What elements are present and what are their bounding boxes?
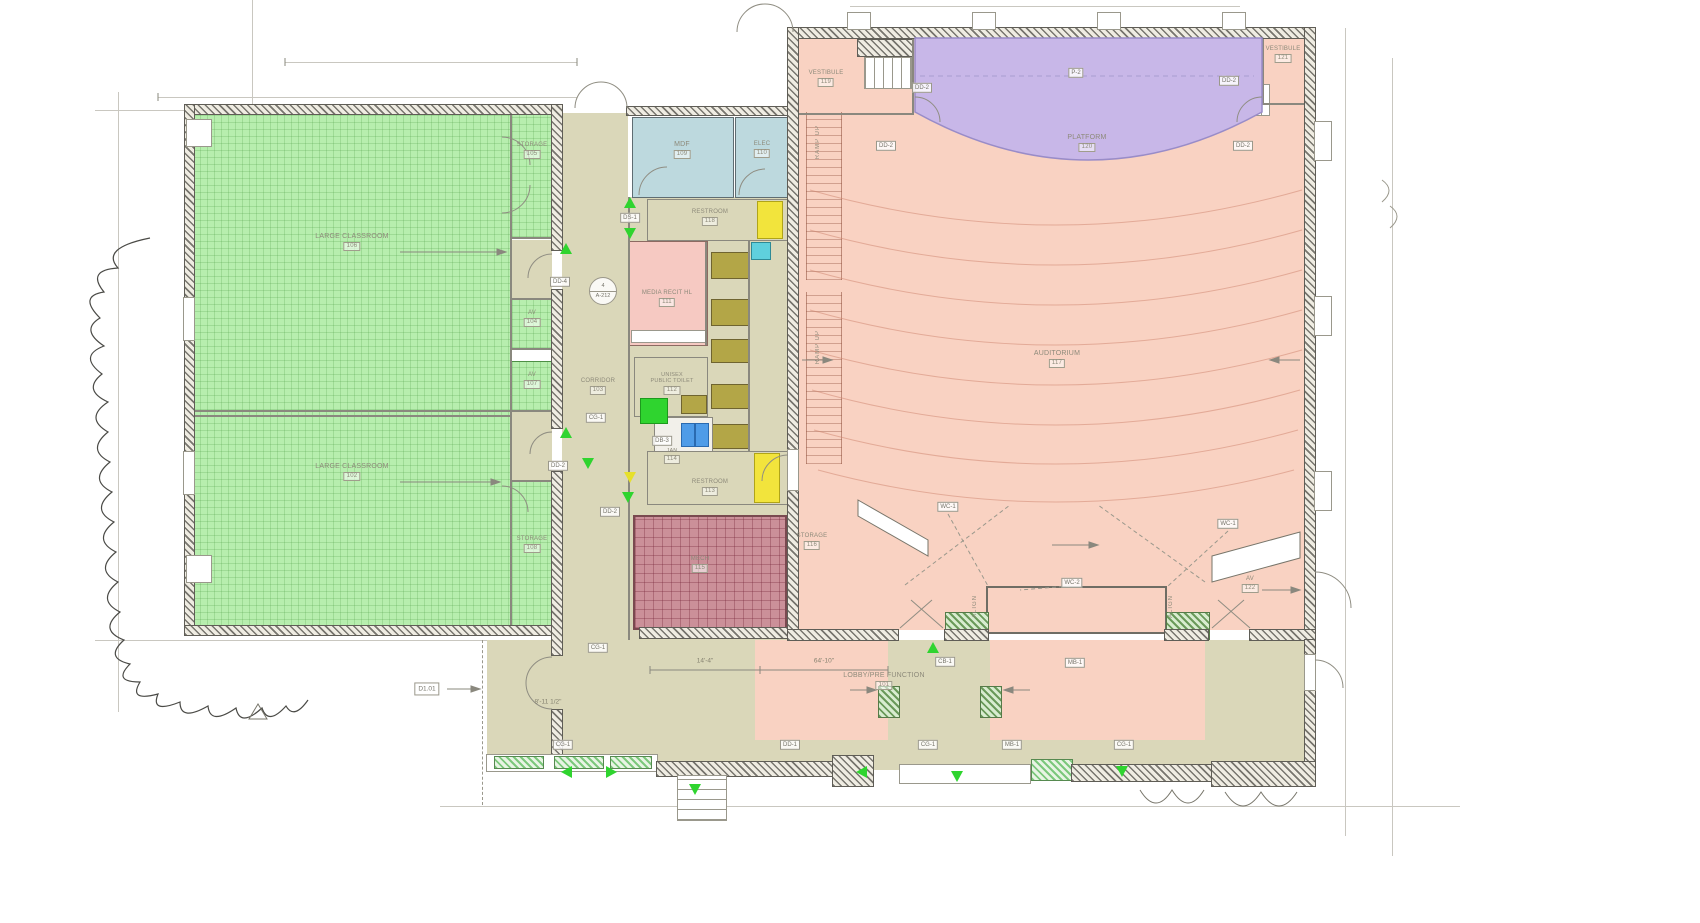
jan-fixture (682, 424, 694, 446)
room-number: 117 (1049, 359, 1065, 368)
stage-stair-right (1243, 85, 1269, 115)
south-wall (1212, 762, 1315, 786)
align-label: ALIGN (1168, 595, 1174, 618)
partition-wall (193, 415, 510, 417)
tag-wc1: WC-1 (1217, 519, 1238, 529)
landscape-arcs (1140, 790, 1297, 806)
room-name: CORRIDOR (581, 378, 615, 384)
south-wall (657, 762, 833, 776)
jan-fixture (696, 424, 708, 446)
ramp-up-label: RAMP UP (815, 125, 821, 159)
room-label-platform: PLATFORM 120 (1067, 134, 1106, 152)
corridor-wall (552, 105, 562, 250)
wing-band-wall (512, 237, 552, 239)
exterior-stair (678, 776, 726, 820)
room-large-classroom-top (193, 113, 510, 627)
media-platform-strip (632, 331, 705, 342)
room-number: 106 (344, 242, 361, 251)
lobby-carpet-left (755, 640, 888, 740)
room-label-storage-aud: STORAGE 116 (797, 533, 828, 550)
room-name: MECH (691, 556, 709, 562)
dimension-line (285, 62, 577, 63)
room-label-mdf: MDF 109 (674, 141, 691, 159)
grid-line (1392, 58, 1393, 856)
device-marker (1116, 766, 1128, 777)
corridor-wall (552, 290, 562, 428)
room-label-classroom-bottom: LARGE CLASSROOM 102 (315, 463, 388, 481)
partition-wall (193, 410, 510, 412)
room-label-classroom-top: LARGE CLASSROOM 106 (315, 233, 388, 251)
grid-line (440, 806, 1460, 807)
room-number: 111 (659, 298, 675, 307)
window-opening (184, 452, 194, 494)
corridor-floor (562, 113, 628, 640)
toilet-fixture (712, 385, 748, 408)
room-number: 108 (524, 544, 541, 553)
room-number: 118 (702, 217, 718, 226)
auditorium-south-wall (945, 630, 988, 640)
room-name: AV (1246, 576, 1254, 582)
corner-column (187, 556, 211, 582)
tag-wc1: WC-1 (937, 502, 958, 512)
sink-counter (682, 396, 706, 413)
exterior-wall (185, 105, 562, 114)
room-auditorium (798, 38, 1305, 630)
stage-stair-wall (858, 40, 912, 56)
entry-doors (900, 765, 1030, 783)
grid-break-marks (1382, 180, 1397, 228)
room-label-storage-top: STORAGE 105 (517, 142, 548, 159)
divider (590, 291, 616, 292)
tag-mb1: MB-1 (1065, 658, 1085, 668)
tag-cg1: CG-1 (918, 740, 938, 750)
tag-p2: P-2 (1068, 68, 1083, 78)
room-name: AV (528, 310, 536, 316)
tag-dd4: DD-4 (550, 277, 570, 287)
room-number: 121 (1275, 54, 1292, 63)
room-name: MEDIA RECIT HL (642, 290, 692, 296)
room-number: 102 (344, 472, 361, 481)
pilaster (973, 13, 995, 29)
wall-pilaster (1315, 122, 1331, 160)
detail-sheet: A-212 (590, 293, 616, 299)
room-name: AUDITORIUM (1034, 350, 1080, 357)
room-label-jan: JAN 114 (664, 448, 680, 464)
wing-band-wall (510, 113, 512, 627)
entry-wall-block (833, 756, 873, 786)
room-number: 105 (524, 150, 541, 159)
dimension-line (158, 97, 577, 98)
toilet-fixture (712, 253, 748, 278)
room-name: ELEC (754, 141, 770, 147)
vestibule-wall (1262, 38, 1264, 105)
tag-dd2: DD-2 (912, 83, 932, 93)
vestibule-wall (1262, 103, 1305, 105)
service-wall (748, 240, 750, 452)
tag-ds1: DS-1 (620, 213, 640, 223)
device-marker (561, 766, 572, 778)
wing-band-wall (512, 348, 552, 350)
service-wall (628, 197, 630, 640)
pier (980, 686, 1002, 718)
room-name: MDF (674, 141, 690, 148)
room-name: STORAGE (517, 536, 548, 542)
room-label-auditorium: AUDITORIUM 117 (1034, 350, 1080, 368)
vestibule-wall (798, 113, 914, 115)
room-name: VESTIBULE (1266, 46, 1301, 52)
device-marker (624, 228, 636, 239)
room-number: 103 (590, 386, 607, 395)
room-label-mech: MECH 115 (691, 556, 709, 573)
tag-dd1: DD-1 (780, 740, 800, 750)
pier (878, 686, 900, 718)
match-line (482, 640, 483, 805)
door-opening (788, 450, 798, 490)
room-name: LOBBY/PRE FUNCTION (843, 672, 924, 679)
stage-stair-left (865, 58, 911, 88)
wall-pilaster (1315, 472, 1331, 510)
room-number: 122 (1242, 584, 1259, 593)
device-marker (689, 784, 701, 795)
wing-band-wall (512, 298, 552, 300)
dimension-text: 8'-11 1/2" (535, 699, 562, 706)
sheet-reference: D1.01 (414, 682, 439, 695)
room-number: 110 (754, 149, 770, 158)
room-name: PUBLIC TOILET (650, 378, 693, 384)
pilaster (1098, 13, 1120, 29)
room-label-vestibule-right: VESTIBULE 121 (1266, 46, 1301, 63)
wing-band-wall (512, 480, 552, 482)
room-name: STORAGE (517, 142, 548, 148)
tag-cg1: CG-1 (588, 643, 608, 653)
dimension-text: 64'-10" (814, 658, 834, 665)
tag-dd2: DD-2 (876, 141, 896, 151)
grid-line (850, 6, 1240, 7)
room-name: RESTROOM (692, 209, 728, 215)
grid-line (95, 640, 487, 641)
corridor-wall (552, 472, 562, 655)
room-number: 104 (524, 318, 541, 327)
exterior-wall (185, 626, 562, 635)
room-name: VESTIBULE (809, 70, 844, 76)
auditorium-south-wall (1165, 630, 1208, 640)
storefront-sill (1032, 760, 1072, 780)
ramp-lower (806, 292, 842, 464)
room-label-restroom-top: RESTROOM 118 (692, 209, 728, 226)
room-label-av-lower: AV 107 (524, 372, 541, 389)
floor-plan: LARGE CLASSROOM 106 LARGE CLASSROOM 102 … (0, 0, 1700, 923)
tag-dd2: DD-2 (548, 461, 568, 471)
toilet-fixture (712, 340, 748, 362)
tag-cg1: CG-1 (1114, 740, 1134, 750)
room-name: STORAGE (797, 533, 828, 539)
ramp-up-label: RAMP UP (815, 330, 821, 364)
device-marker (951, 771, 963, 782)
device-marker (560, 427, 572, 438)
auditorium-south-wall (1250, 630, 1315, 640)
room-label-unisex: UNISEX PUBLIC TOILET 112 (650, 372, 693, 395)
wing-nook-lower (512, 412, 552, 480)
room-label-elec: ELEC 110 (754, 141, 770, 158)
device-marker (622, 492, 634, 503)
room-label-av-upper: AV 104 (524, 310, 541, 327)
room-label-corridor: CORRIDOR 103 (581, 378, 615, 395)
room-name: RESTROOM (692, 479, 728, 485)
service-wall (705, 242, 707, 345)
door-opening (1305, 655, 1315, 690)
pilaster (848, 13, 870, 29)
window-opening (184, 298, 194, 340)
wall-pilaster (1315, 297, 1331, 335)
room-number: 109 (674, 150, 691, 159)
detail-number: 4 (590, 283, 616, 289)
restroom-bottom-counter (755, 454, 779, 502)
room-number: 119 (818, 78, 834, 87)
device-marker (560, 243, 572, 254)
room-label-storage-bottom: STORAGE 108 (517, 536, 548, 553)
fixture-cyan (752, 243, 770, 259)
restroom-top-counter (758, 202, 782, 238)
storefront-sill (495, 757, 543, 768)
room-label-lobby: LOBBY/PRE FUNCTION 101 (843, 672, 924, 690)
device-marker (927, 642, 939, 653)
grid-line (252, 0, 253, 110)
align-label: ALIGN (972, 595, 978, 618)
tag-dd2: DD-2 (1233, 141, 1253, 151)
dimension-text: 14'-4" (697, 658, 714, 665)
detail-tag: 4 A-212 (589, 277, 617, 305)
device-marker (606, 766, 617, 778)
storefront-sill (611, 757, 651, 768)
room-number: 120 (1079, 143, 1096, 152)
equipment-marker (640, 398, 668, 424)
exterior-wall (1305, 28, 1315, 640)
tag-cg1: CG-1 (553, 740, 573, 750)
auditorium-south-wall (788, 630, 898, 640)
tag-cg1: CG-1 (586, 413, 606, 423)
room-mech (635, 517, 785, 628)
room-name: JAN (666, 448, 677, 454)
tag-db3: DB-3 (652, 436, 672, 446)
wing-band-wall (512, 410, 552, 412)
device-marker (582, 458, 594, 469)
room-name: LARGE CLASSROOM (315, 233, 388, 240)
room-number: 112 (664, 386, 680, 395)
revision-delta (249, 704, 267, 719)
exterior-wall (788, 28, 1315, 38)
room-label-restroom-bottom: RESTROOM 113 (692, 479, 728, 496)
room-number: 113 (702, 487, 718, 496)
room-name: AV (528, 372, 536, 378)
tag-cb1: CB-1 (935, 657, 955, 667)
vestibule-wall (912, 38, 914, 115)
tag-dd2: DD-2 (600, 507, 620, 517)
grid-line (118, 92, 119, 712)
tag-mb1: MB-1 (1002, 740, 1022, 750)
tag-wc2: WC-2 (1061, 578, 1082, 588)
room-number: 115 (692, 564, 708, 573)
room-storage-bottom (512, 482, 552, 627)
pilaster (1223, 13, 1245, 29)
room-number: 116 (804, 541, 820, 550)
lobby-wall (640, 628, 790, 638)
grid-line (1345, 28, 1346, 836)
room-name: UNISEX (661, 372, 683, 378)
device-marker-yellow (624, 472, 636, 483)
room-label-av-aud: AV 122 (1242, 576, 1259, 593)
grid-line (95, 110, 187, 111)
lobby-carpet-right (990, 640, 1205, 740)
toilet-fixture (712, 425, 748, 448)
room-label-vestibule-left: VESTIBULE 119 (809, 70, 844, 87)
north-wall (627, 107, 790, 115)
south-wall (1072, 765, 1212, 781)
room-number: 107 (524, 380, 541, 389)
control-booth (988, 588, 1165, 632)
room-name: LARGE CLASSROOM (315, 463, 388, 470)
corner-column (187, 120, 211, 146)
room-label-media: MEDIA RECIT HL 111 (642, 290, 692, 307)
room-number: 101 (876, 681, 893, 690)
wing-nook-upper (512, 240, 552, 298)
room-name: PLATFORM (1067, 134, 1106, 141)
room-storage-top (512, 113, 552, 237)
device-marker (856, 766, 867, 778)
tag-dd2: DD-2 (1219, 76, 1239, 86)
ramp-upper (806, 112, 842, 280)
toilet-fixture (712, 300, 748, 325)
device-marker (624, 197, 636, 208)
room-number: 114 (664, 455, 680, 464)
